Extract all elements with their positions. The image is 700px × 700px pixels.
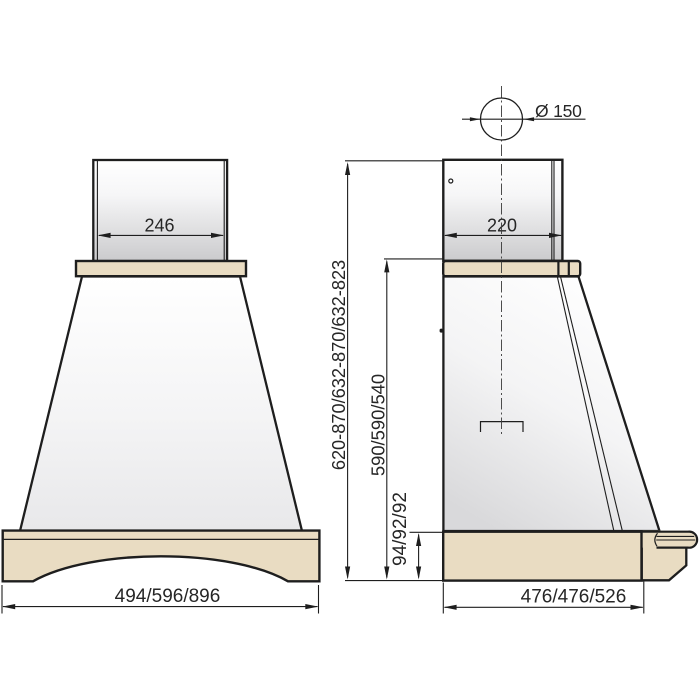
svg-text:476/476/526: 476/476/526 bbox=[521, 587, 627, 608]
svg-text:246: 246 bbox=[144, 216, 174, 236]
svg-text:620-870/632-870/632-823: 620-870/632-870/632-823 bbox=[329, 260, 349, 470]
svg-text:94/92/92: 94/92/92 bbox=[390, 492, 411, 566]
svg-text:590/590/540: 590/590/540 bbox=[368, 374, 389, 476]
svg-text:Ø 150: Ø 150 bbox=[535, 101, 582, 121]
svg-text:494/596/896: 494/596/896 bbox=[115, 586, 221, 607]
svg-text:220: 220 bbox=[487, 216, 517, 236]
